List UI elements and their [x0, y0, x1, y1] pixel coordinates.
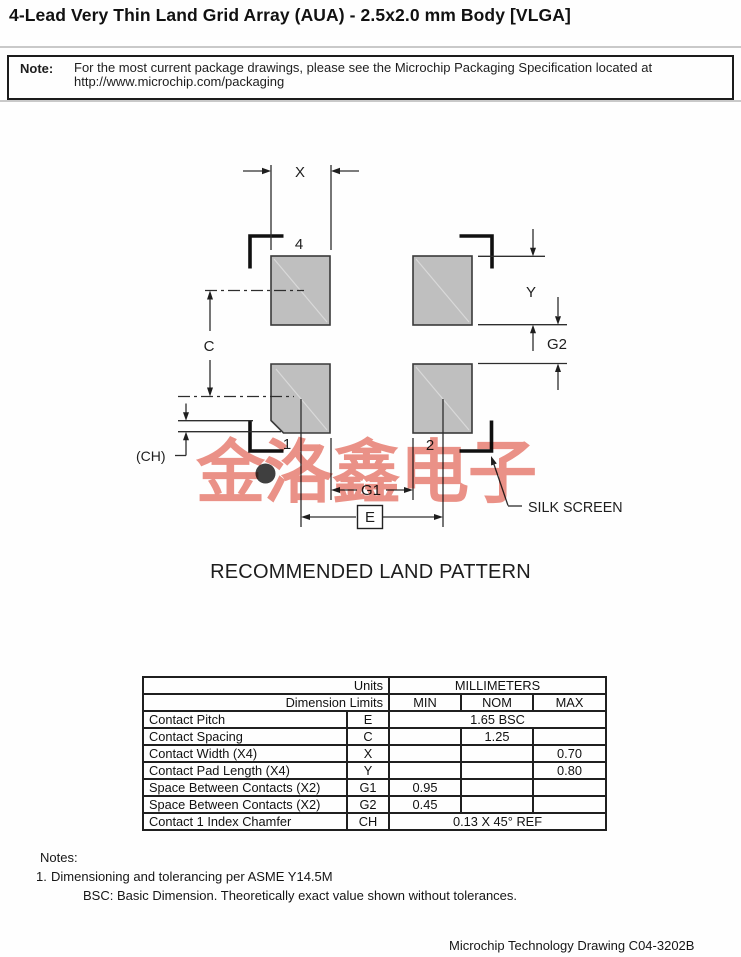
table-row: Contact Spacing C 1.25 [143, 728, 606, 745]
min-header-cell: MIN [389, 694, 461, 711]
nom-header-cell: NOM [461, 694, 533, 711]
note-box: Note: For the most current package drawi… [7, 55, 734, 100]
note-label: Note: [9, 61, 74, 98]
max-header-cell: MAX [533, 694, 606, 711]
pad-number-4: 4 [295, 236, 303, 253]
silk-screen-label: SILK SCREEN [528, 500, 623, 516]
note-text-line1: For the most current package drawings, p… [74, 61, 652, 75]
table-header-limits-row: Dimension Limits MIN NOM MAX [143, 694, 606, 711]
divider-top [0, 46, 741, 48]
footer-drawing-number: Microchip Technology Drawing C04-3202B [449, 938, 694, 953]
notes-heading: Notes: [40, 850, 78, 865]
note-item-1: 1.Dimensioning and tolerancing per ASME … [36, 869, 333, 884]
dim-label-y: Y [526, 284, 536, 301]
dimension-limits-header-cell: Dimension Limits [143, 694, 389, 711]
note-item-1-text: Dimensioning and tolerancing per ASME Y1… [51, 869, 333, 884]
table-row: Space Between Contacts (X2) G1 0.95 [143, 779, 606, 796]
watermark-text: 金洛鑫电子 [196, 437, 536, 509]
millimeters-header-cell: MILLIMETERS [389, 677, 606, 694]
dim-label-g2: G2 [547, 336, 567, 353]
note-text: For the most current package drawings, p… [74, 61, 652, 98]
note-text-line2: http://www.microchip.com/packaging [74, 75, 652, 89]
table-header-units-row: Units MILLIMETERS [143, 677, 606, 694]
page-title: 4-Lead Very Thin Land Grid Array (AUA) -… [9, 5, 571, 26]
table-row: Space Between Contacts (X2) G2 0.45 [143, 796, 606, 813]
drawing-caption: RECOMMENDED LAND PATTERN [0, 561, 741, 584]
dimension-table: Units MILLIMETERS Dimension Limits MIN N… [142, 676, 607, 831]
dim-label-ch: (CH) [136, 448, 166, 464]
land-pattern-drawing: X 4 1 2 Y G2 C [0, 130, 741, 590]
units-header-cell: Units [143, 677, 389, 694]
dimension-g2: G2 [478, 297, 567, 390]
note-item-1-number: 1. [36, 869, 51, 884]
table-row: Contact Width (X4) X 0.70 [143, 745, 606, 762]
divider-below-note [0, 100, 741, 102]
table-row: Contact Pad Length (X4) Y 0.80 [143, 762, 606, 779]
dim-label-x: X [295, 164, 305, 181]
note-item-2: BSC: Basic Dimension. Theoretically exac… [83, 888, 517, 903]
dim-label-c: C [204, 338, 215, 355]
table-row: Contact 1 Index Chamfer CH 0.13 X 45° RE… [143, 813, 606, 830]
table-row: Contact Pitch E 1.65 BSC [143, 711, 606, 728]
